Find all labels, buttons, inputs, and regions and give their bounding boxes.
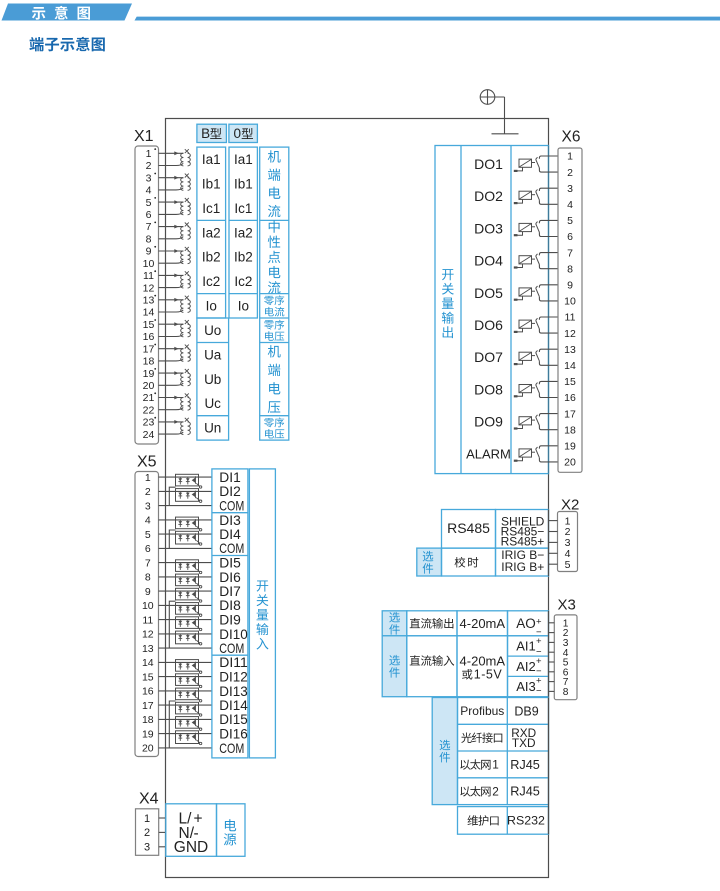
- svg-text:24: 24: [143, 429, 155, 441]
- svg-text:14: 14: [142, 657, 154, 669]
- svg-text:7: 7: [145, 557, 151, 569]
- svg-text:5: 5: [146, 197, 152, 209]
- svg-text:3: 3: [146, 172, 152, 184]
- svg-text:DO9: DO9: [474, 414, 503, 430]
- svg-text:21: 21: [143, 392, 155, 404]
- svg-text:16: 16: [142, 686, 154, 698]
- svg-text:13: 13: [143, 295, 155, 307]
- svg-text:1: 1: [146, 148, 152, 160]
- svg-text:2: 2: [567, 167, 573, 179]
- svg-text:9: 9: [567, 280, 573, 292]
- svg-text:DO2: DO2: [474, 188, 503, 204]
- svg-text:1: 1: [144, 813, 150, 825]
- svg-text:DO8: DO8: [474, 381, 503, 397]
- svg-text:DO5: DO5: [474, 285, 503, 301]
- svg-text:10: 10: [564, 296, 576, 308]
- svg-text:DO4: DO4: [474, 253, 503, 269]
- svg-text:X6: X6: [562, 129, 581, 146]
- svg-text:0: 0: [233, 126, 241, 141]
- svg-text:7: 7: [146, 221, 152, 233]
- svg-text:Ic2: Ic2: [202, 274, 220, 289]
- svg-text:23: 23: [143, 417, 155, 429]
- svg-text:RJ45: RJ45: [510, 758, 540, 772]
- svg-text:2: 2: [492, 784, 499, 798]
- svg-text:15: 15: [143, 319, 155, 331]
- svg-text:X4: X4: [139, 791, 159, 808]
- svg-text:B: B: [201, 126, 210, 141]
- svg-text:13: 13: [564, 344, 576, 356]
- svg-text:Uc: Uc: [204, 396, 221, 411]
- svg-text:14: 14: [143, 307, 155, 319]
- svg-text:8: 8: [563, 687, 569, 698]
- svg-text:16: 16: [143, 331, 155, 343]
- svg-text:3: 3: [145, 500, 151, 512]
- svg-text:Ua: Ua: [204, 347, 222, 362]
- svg-text:17: 17: [564, 408, 576, 420]
- svg-text:16: 16: [564, 392, 576, 404]
- svg-text:IRIG B+: IRIG B+: [501, 560, 544, 574]
- svg-text:Ic1: Ic1: [202, 201, 220, 216]
- svg-text:1: 1: [145, 472, 151, 484]
- svg-text:DO3: DO3: [474, 220, 503, 236]
- svg-text:Io: Io: [206, 299, 217, 314]
- svg-text:2: 2: [144, 827, 150, 839]
- svg-text:10: 10: [143, 258, 155, 270]
- svg-text:20: 20: [143, 380, 155, 392]
- svg-text:9: 9: [145, 586, 151, 598]
- svg-text:7: 7: [567, 247, 573, 259]
- svg-text:4: 4: [146, 185, 152, 197]
- svg-text:AI2: AI2: [516, 659, 536, 674]
- svg-text:X5: X5: [137, 454, 157, 471]
- svg-text:2: 2: [145, 486, 151, 498]
- svg-text:Ib2: Ib2: [234, 250, 253, 265]
- svg-text:18: 18: [142, 714, 154, 726]
- svg-text:4: 4: [567, 199, 573, 211]
- svg-text:18: 18: [564, 424, 576, 436]
- svg-text:−: −: [536, 686, 542, 697]
- svg-text:1: 1: [567, 151, 573, 163]
- svg-text:5: 5: [145, 529, 151, 541]
- svg-text:12: 12: [143, 282, 155, 294]
- svg-text:Ic2: Ic2: [234, 274, 252, 289]
- svg-text:11: 11: [143, 270, 154, 282]
- svg-text:RJ45: RJ45: [510, 785, 540, 799]
- svg-text:Profibus: Profibus: [460, 704, 504, 718]
- svg-text:10: 10: [142, 600, 154, 612]
- svg-text:3: 3: [567, 183, 573, 195]
- svg-text:COM: COM: [219, 740, 244, 756]
- svg-text:DO6: DO6: [474, 317, 503, 333]
- svg-text:20: 20: [142, 743, 154, 755]
- svg-text:15: 15: [142, 671, 154, 683]
- svg-text:5: 5: [567, 215, 573, 227]
- svg-text:Io: Io: [238, 299, 249, 314]
- svg-text:6: 6: [567, 231, 573, 243]
- svg-text:17: 17: [142, 700, 154, 712]
- svg-text:X3: X3: [558, 597, 576, 614]
- svg-text:AO: AO: [516, 616, 536, 631]
- svg-text:5: 5: [565, 559, 571, 571]
- svg-text:AI3: AI3: [516, 679, 536, 694]
- svg-text:DO1: DO1: [474, 156, 503, 172]
- svg-text:Ib2: Ib2: [202, 250, 221, 265]
- svg-text:X1: X1: [134, 128, 154, 145]
- svg-text:Ia1: Ia1: [234, 152, 253, 167]
- svg-text:ALARM: ALARM: [466, 446, 511, 461]
- svg-text:RS485+: RS485+: [501, 535, 545, 549]
- svg-text:3: 3: [144, 842, 150, 854]
- svg-text:8: 8: [145, 572, 151, 584]
- svg-text:Ia2: Ia2: [234, 225, 253, 240]
- svg-text:Ib1: Ib1: [202, 177, 221, 192]
- svg-text:11: 11: [142, 614, 153, 626]
- svg-text:22: 22: [143, 404, 155, 416]
- svg-text:19: 19: [143, 368, 155, 380]
- svg-text:Ic1: Ic1: [234, 201, 252, 216]
- svg-text:GND: GND: [174, 839, 208, 856]
- svg-text:8: 8: [567, 263, 573, 275]
- svg-text:1: 1: [492, 758, 499, 772]
- svg-text:4-20mA: 4-20mA: [460, 616, 506, 631]
- svg-text:4: 4: [145, 515, 151, 527]
- svg-text:DO7: DO7: [474, 349, 503, 365]
- svg-text:DB9: DB9: [514, 704, 538, 718]
- svg-text:RS232: RS232: [507, 814, 545, 828]
- svg-text:6: 6: [146, 209, 152, 221]
- svg-text:9: 9: [146, 246, 152, 258]
- svg-text:20: 20: [564, 457, 576, 469]
- svg-text:13: 13: [142, 643, 154, 655]
- svg-text:15: 15: [564, 376, 576, 388]
- svg-text:17: 17: [143, 343, 155, 355]
- svg-text:12: 12: [564, 328, 576, 340]
- svg-text:Ia1: Ia1: [202, 152, 221, 167]
- svg-text:6: 6: [145, 543, 151, 555]
- svg-text:Ia2: Ia2: [202, 225, 221, 240]
- svg-text:TXD: TXD: [512, 736, 536, 750]
- svg-text:18: 18: [143, 356, 155, 368]
- svg-text:Un: Un: [204, 421, 221, 436]
- svg-text:1-5V: 1-5V: [474, 668, 503, 682]
- svg-text:Uo: Uo: [204, 323, 221, 338]
- svg-text:19: 19: [564, 441, 576, 453]
- svg-text:Ub: Ub: [204, 372, 221, 387]
- svg-text:8: 8: [146, 233, 152, 245]
- svg-text:Ib1: Ib1: [234, 177, 253, 192]
- svg-text:12: 12: [142, 629, 154, 641]
- svg-text:11: 11: [565, 312, 576, 324]
- svg-text:4-20mA: 4-20mA: [460, 653, 506, 668]
- svg-text:14: 14: [564, 360, 576, 372]
- svg-text:AI1: AI1: [516, 639, 536, 654]
- svg-text:RS485: RS485: [447, 520, 490, 536]
- svg-text:19: 19: [142, 728, 154, 740]
- svg-text:2: 2: [146, 160, 152, 172]
